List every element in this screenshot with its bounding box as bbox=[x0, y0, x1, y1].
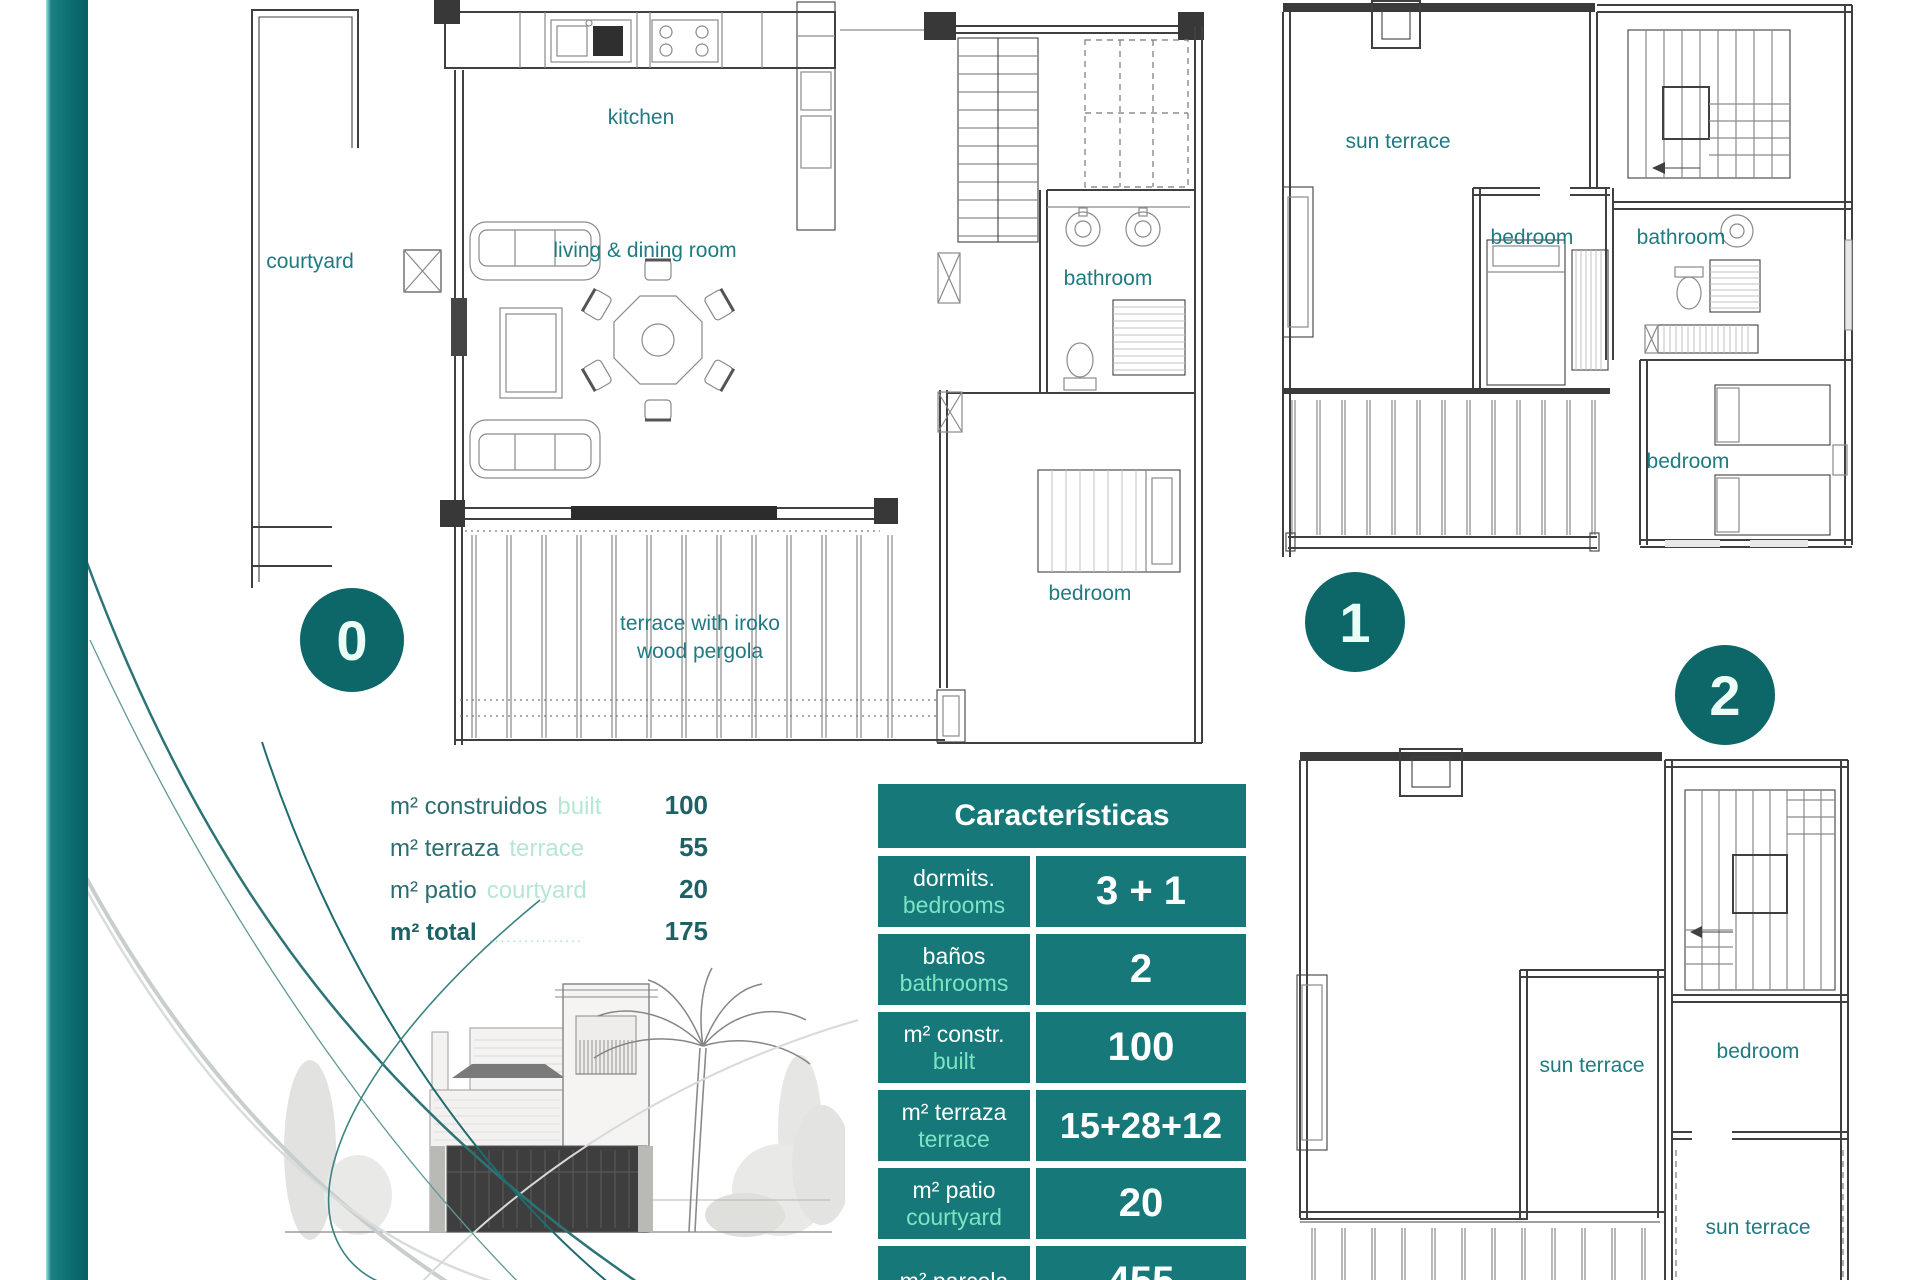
table-value-cell: 3 + 1 bbox=[1036, 856, 1246, 927]
left-accent-bar bbox=[46, 0, 88, 1280]
room-label-living-dining: living & dining room bbox=[553, 239, 736, 262]
room-label-bedroom-1a: bedroom bbox=[1491, 226, 1574, 249]
summary-value: 55 bbox=[679, 832, 708, 863]
table-label-es: m² patio bbox=[878, 1177, 1030, 1204]
room-label-bedroom-0: bedroom bbox=[1049, 582, 1132, 605]
table-label-es: baños bbox=[878, 943, 1030, 970]
room-label-terrace-line1: terrace with iroko bbox=[620, 612, 780, 635]
table-row: m² parcela 455 bbox=[878, 1246, 1246, 1280]
table-row: m² constr. built 100 bbox=[878, 1012, 1246, 1083]
table-label-es: m² parcela bbox=[878, 1268, 1030, 1280]
floor-badge-2: 2 bbox=[1675, 645, 1775, 745]
table-label-cell: m² parcela bbox=[878, 1246, 1030, 1280]
summary-label-es: m² terraza bbox=[390, 835, 499, 863]
table-label-cell: baños bathrooms bbox=[878, 934, 1030, 1005]
room-label-courtyard: courtyard bbox=[266, 250, 354, 273]
summary-label-en: courtyard bbox=[487, 877, 587, 905]
floor-plan-1: sun terrace bedroom bathroom bedroom bbox=[1275, 0, 1860, 570]
table-label-cell: m² patio courtyard bbox=[878, 1168, 1030, 1239]
table-row: m² patio courtyard 20 bbox=[878, 1168, 1246, 1239]
table-label-en: courtyard bbox=[878, 1204, 1030, 1231]
summary-label-es: m² construidos bbox=[390, 793, 547, 821]
table-label-en: terrace bbox=[878, 1126, 1030, 1153]
summary-row-built: m² construidos built 100 bbox=[390, 790, 708, 832]
summary-row-terrace: m² terraza terrace 55 bbox=[390, 832, 708, 874]
table-row: m² terraza terrace 15+28+12 bbox=[878, 1090, 1246, 1161]
summary-label-en: built bbox=[557, 793, 601, 821]
characteristics-table: Características dormits. bedrooms 3 + 1 … bbox=[878, 784, 1246, 1280]
table-value-cell: 15+28+12 bbox=[1036, 1090, 1246, 1161]
table-title: Características bbox=[878, 784, 1246, 848]
brochure-page: kitchen courtyard living & dining room b… bbox=[0, 0, 1920, 1280]
table-label-es: dormits. bbox=[878, 865, 1030, 892]
room-label-sun-terrace-2bot: sun terrace bbox=[1705, 1216, 1810, 1239]
table-label-en: bathrooms bbox=[878, 970, 1030, 997]
table-value-cell: 20 bbox=[1036, 1168, 1246, 1239]
summary-row-total: m² total ................ 175 bbox=[390, 916, 708, 958]
table-row: baños bathrooms 2 bbox=[878, 934, 1246, 1005]
floor-plan-2: sun terrace bedroom sun terrace bbox=[1290, 748, 1858, 1280]
room-label-bathroom-0: bathroom bbox=[1064, 267, 1153, 290]
table-label-cell: m² terraza terrace bbox=[878, 1090, 1030, 1161]
summary-row-courtyard: m² patio courtyard 20 bbox=[390, 874, 708, 916]
summary-label-es: m² total bbox=[390, 919, 477, 947]
summary-value: 20 bbox=[679, 874, 708, 905]
table-value-cell: 100 bbox=[1036, 1012, 1246, 1083]
dotted-leader: ................ bbox=[489, 929, 583, 945]
table-label-en: built bbox=[878, 1048, 1030, 1075]
floor-badge-0: 0 bbox=[300, 588, 404, 692]
summary-label-es: m² patio bbox=[390, 877, 477, 905]
room-label-kitchen: kitchen bbox=[608, 106, 675, 129]
room-label-bathroom-1: bathroom bbox=[1637, 226, 1726, 249]
summary-value: 175 bbox=[665, 916, 708, 947]
room-label-terrace-line2: wood pergola bbox=[636, 640, 763, 663]
house-elevation-sketch bbox=[255, 950, 845, 1250]
table-label-cell: dormits. bedrooms bbox=[878, 856, 1030, 927]
summary-value: 100 bbox=[665, 790, 708, 821]
floor-badge-1: 1 bbox=[1305, 572, 1405, 672]
area-summary: m² construidos built 100 m² terraza terr… bbox=[390, 790, 708, 958]
table-row: dormits. bedrooms 3 + 1 bbox=[878, 856, 1246, 927]
room-label-bedroom-1b: bedroom bbox=[1647, 450, 1730, 473]
room-label-bedroom-2: bedroom bbox=[1717, 1040, 1800, 1063]
room-label-sun-terrace-2mid: sun terrace bbox=[1539, 1054, 1644, 1077]
table-value-cell: 455 bbox=[1036, 1246, 1246, 1280]
table-label-en: bedrooms bbox=[878, 892, 1030, 919]
room-label-sun-terrace-1: sun terrace bbox=[1345, 130, 1450, 153]
summary-label-en: terrace bbox=[509, 835, 584, 863]
table-label-es: m² terraza bbox=[878, 1099, 1030, 1126]
table-value-cell: 2 bbox=[1036, 934, 1246, 1005]
table-label-cell: m² constr. built bbox=[878, 1012, 1030, 1083]
table-label-es: m² constr. bbox=[878, 1021, 1030, 1048]
